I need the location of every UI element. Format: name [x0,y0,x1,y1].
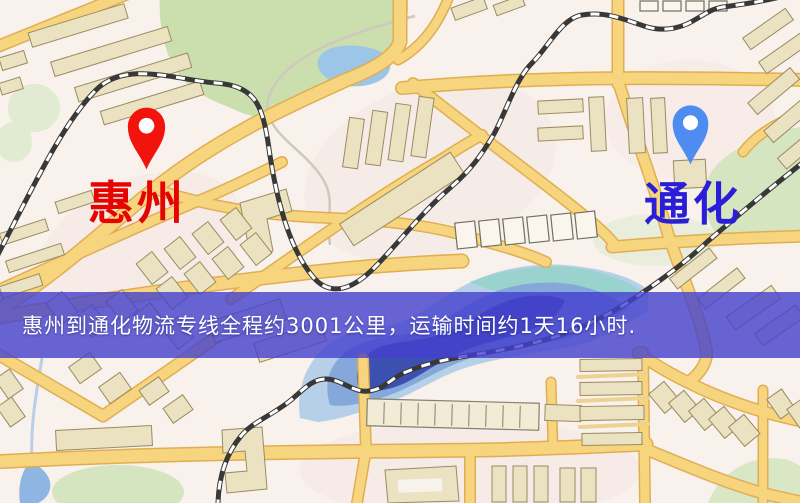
destination-pin-icon [668,100,713,171]
route-info-banner: 惠州到通化物流专线全程约3001公里，运输时间约1天16小时. [0,292,800,358]
origin-city-label: 惠州 [88,180,186,226]
destination-city-label: 通化 [644,181,742,227]
route-info-text: 惠州到通化物流专线全程约3001公里，运输时间约1天16小时. [0,310,636,340]
map-canvas [0,0,800,503]
origin-pin-icon [123,102,170,176]
map-image: 惠州 通化 惠州到通化物流专线全程约3001公里，运输时间约1天16小时. [0,0,800,503]
